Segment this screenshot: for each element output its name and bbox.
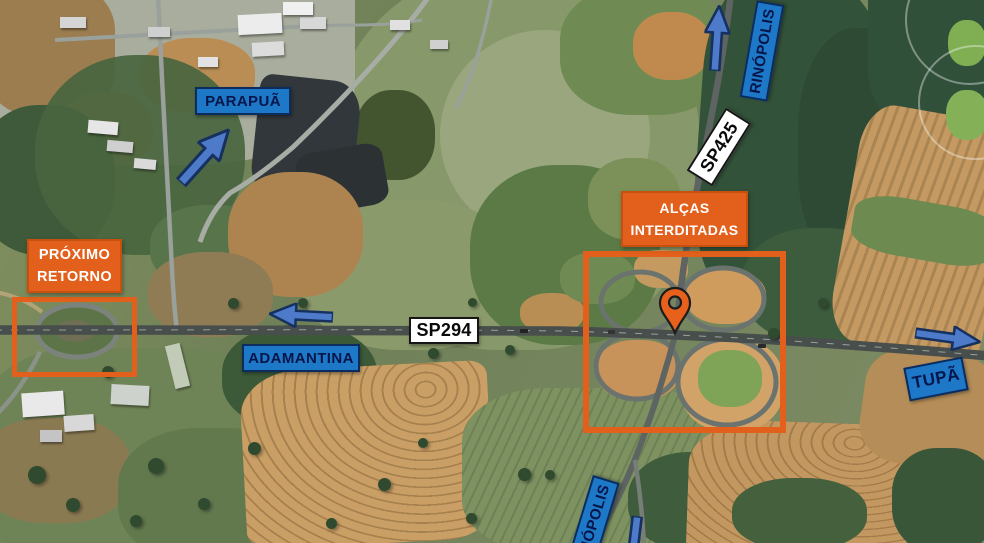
building	[198, 57, 218, 67]
building	[40, 430, 62, 442]
highway-sp294	[0, 330, 984, 356]
building	[148, 27, 170, 37]
tree	[326, 518, 337, 529]
building	[63, 414, 94, 432]
label-proximo-retorno-line2: RETORNO	[37, 269, 112, 285]
town-road	[200, 0, 430, 242]
building	[252, 41, 285, 57]
building	[283, 2, 313, 15]
tree	[468, 298, 477, 307]
label-proximo-retorno: PRÓXIMO RETORNO	[27, 239, 122, 293]
label-alcas-line2: INTERDITADAS	[631, 222, 739, 238]
tree	[428, 348, 439, 359]
tree	[418, 438, 428, 448]
highlight-rect-interchange	[583, 251, 786, 433]
building	[60, 17, 86, 28]
tree	[148, 458, 164, 474]
building	[134, 158, 157, 170]
label-sp294: SP294	[409, 317, 479, 344]
tree	[130, 515, 142, 527]
tree	[248, 442, 261, 455]
tree	[818, 298, 828, 308]
building	[21, 391, 65, 418]
building	[238, 13, 283, 35]
tree	[505, 345, 515, 355]
arrow-up-icon	[702, 4, 733, 72]
tree	[466, 513, 477, 524]
tree	[198, 498, 210, 510]
tree	[228, 298, 239, 309]
arrow-left-icon	[268, 301, 333, 329]
tree	[66, 498, 80, 512]
label-parapua: PARAPUÃ	[195, 87, 291, 115]
town-road	[456, 0, 492, 108]
label-alcas-interditadas: ALÇAS INTERDITADAS	[621, 191, 748, 247]
highlight-rect-return	[12, 297, 137, 377]
building	[111, 384, 150, 406]
vehicle	[520, 329, 528, 333]
label-proximo-retorno-line1: PRÓXIMO	[39, 247, 110, 263]
building	[107, 140, 134, 153]
location-pin-icon	[657, 286, 693, 336]
map-viewport: PARAPUÃ PRÓXIMO RETORNO ALÇAS INTERDITAD…	[0, 0, 984, 543]
building	[87, 120, 118, 136]
tree	[28, 466, 46, 484]
roads-layer	[0, 0, 984, 543]
tree	[378, 478, 391, 491]
tree	[545, 470, 555, 480]
building	[390, 20, 410, 30]
town-road	[158, 0, 177, 331]
label-alcas-line1: ALÇAS	[659, 200, 709, 216]
label-adamantina: ADAMANTINA	[242, 344, 360, 372]
building	[430, 40, 448, 49]
building	[300, 17, 326, 29]
tree	[518, 468, 531, 481]
